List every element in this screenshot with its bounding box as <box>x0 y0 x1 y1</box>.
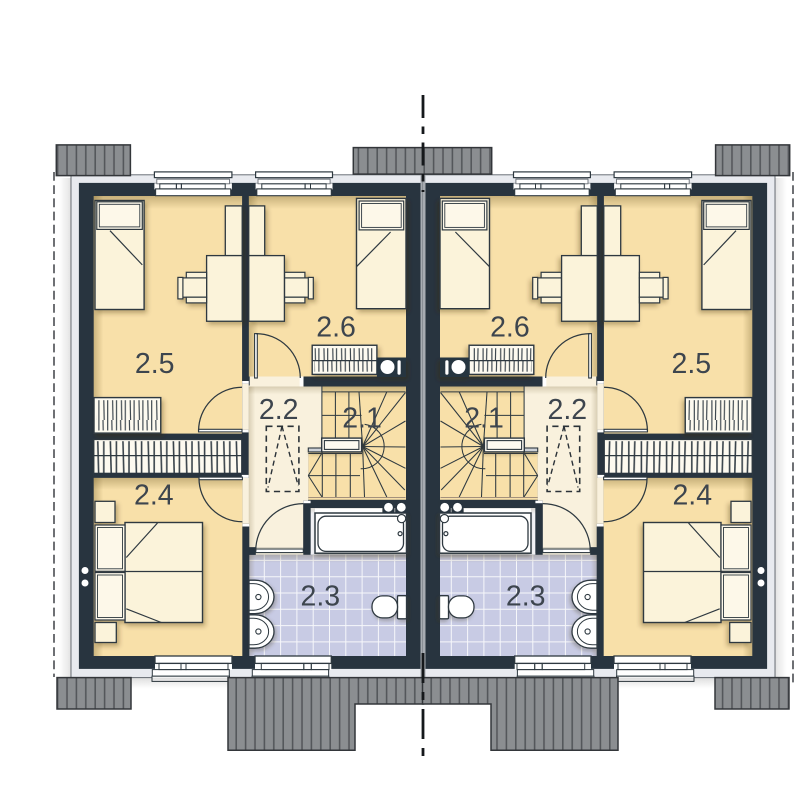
svg-text:2.5: 2.5 <box>135 348 175 380</box>
svg-text:2.6: 2.6 <box>316 312 356 344</box>
svg-text:2.4: 2.4 <box>134 480 174 512</box>
svg-text:2.2: 2.2 <box>547 394 587 426</box>
svg-text:2.5: 2.5 <box>671 348 711 380</box>
svg-text:2.1: 2.1 <box>464 403 504 435</box>
svg-text:2.6: 2.6 <box>490 312 530 344</box>
svg-text:2.2: 2.2 <box>259 394 299 426</box>
svg-text:2.1: 2.1 <box>342 403 382 435</box>
svg-text:2.3: 2.3 <box>506 581 546 613</box>
svg-text:2.4: 2.4 <box>672 480 712 512</box>
svg-text:2.3: 2.3 <box>300 581 340 613</box>
